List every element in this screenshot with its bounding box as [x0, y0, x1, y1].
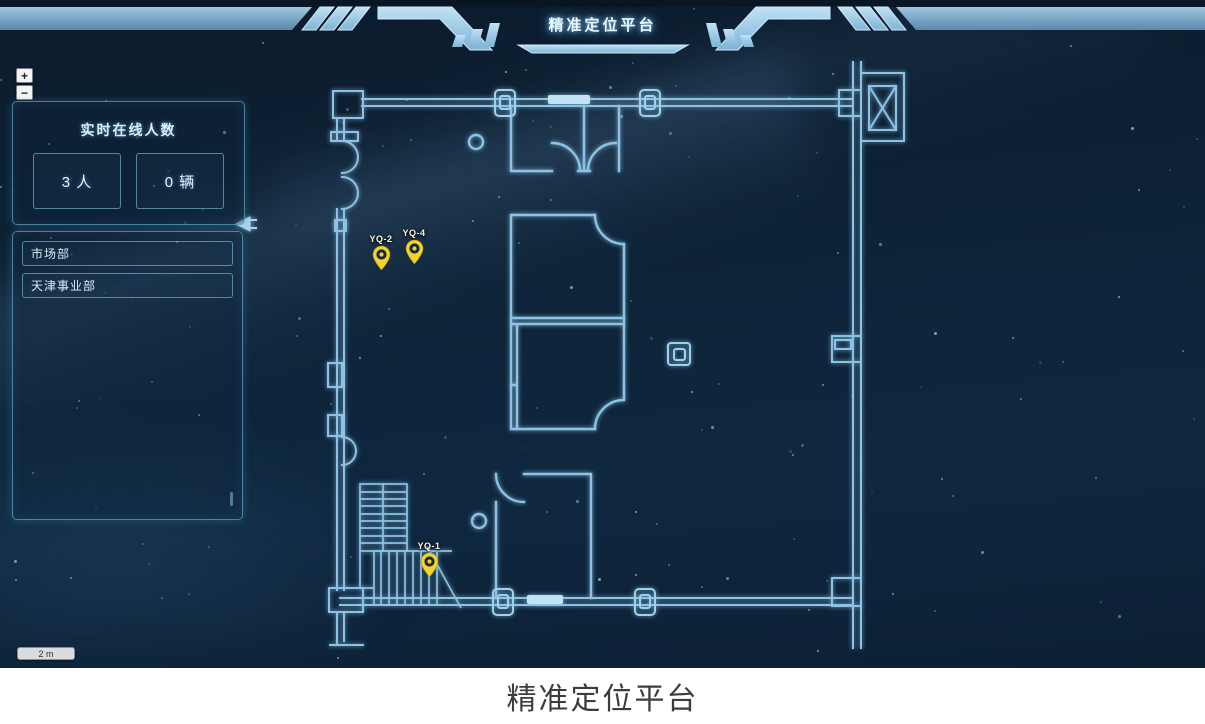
pin-label: YQ-4	[402, 228, 425, 238]
caption-text: 精准定位平台	[507, 674, 699, 718]
map-scale-bar: 2 m	[17, 647, 75, 660]
stats-panel-title: 实时在线人数	[13, 120, 244, 140]
pin-label: YQ-1	[417, 541, 440, 551]
online-stats-panel: 实时在线人数 3 人 0 辆	[12, 101, 245, 225]
elevator-icon	[861, 73, 904, 141]
scrollbar-thumb[interactable]	[230, 492, 233, 506]
screenshot-stage: 精准定位平台 + −	[0, 0, 1205, 724]
department-item-tianjin[interactable]: 天津事业部	[22, 273, 233, 298]
department-panel: 市场部 天津事业部	[12, 231, 243, 520]
location-pin-icon	[370, 245, 392, 270]
people-count: 3 人	[33, 153, 121, 209]
map-pin-yq2[interactable]: YQ-2	[369, 234, 392, 270]
positioning-app: 精准定位平台 + −	[0, 0, 1205, 668]
staircase	[360, 484, 461, 608]
location-pin-icon	[403, 239, 425, 264]
vehicle-count: 0 辆	[136, 153, 224, 209]
pin-label: YQ-2	[369, 234, 392, 244]
map-pin-yq4[interactable]: YQ-4	[402, 228, 425, 264]
department-item-marketing[interactable]: 市场部	[22, 241, 233, 266]
location-pin-icon	[418, 552, 440, 577]
map-pin-yq1[interactable]: YQ-1	[417, 541, 440, 577]
caption-strip: 精准定位平台	[0, 668, 1205, 724]
